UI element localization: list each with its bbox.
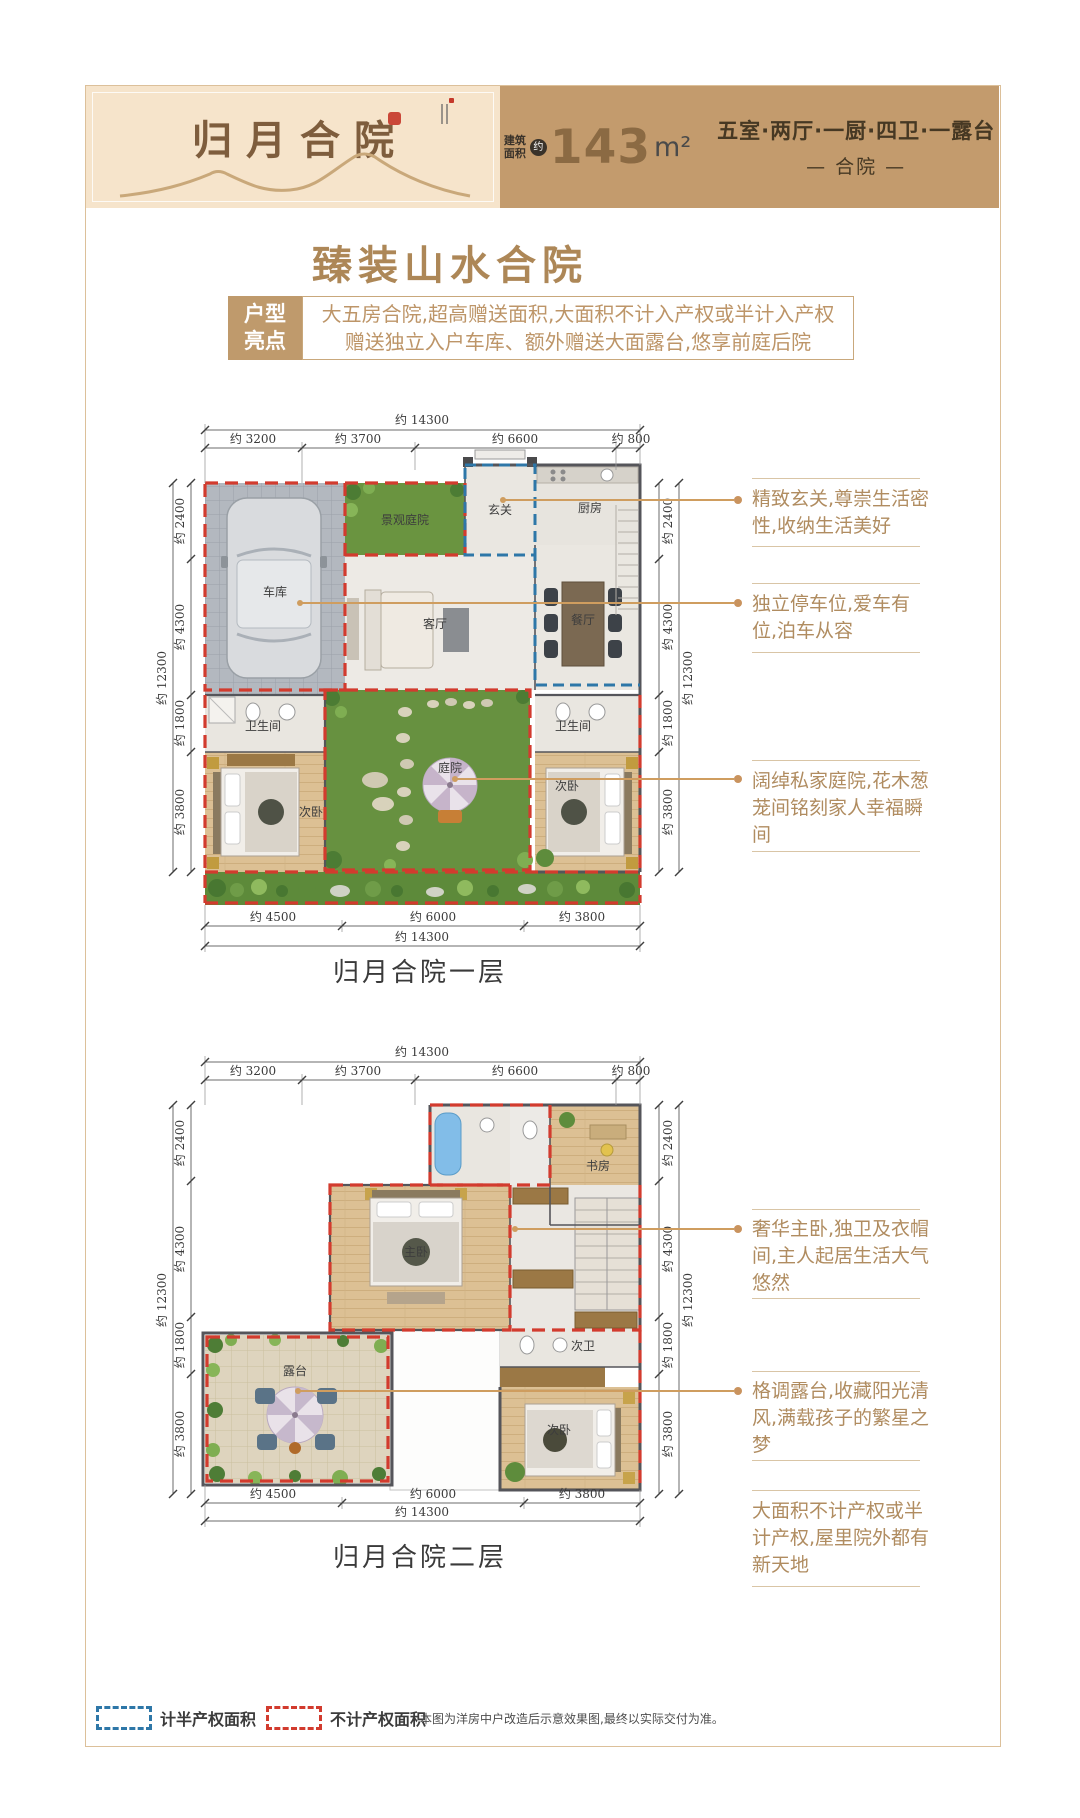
- svg-text:约 14300: 约 14300: [395, 929, 449, 944]
- room-label-foyer: 玄关: [488, 502, 512, 517]
- floor1-annotation-3: 阔绰私家庭院,花木葱茏间铭刻家人幸福瞬间: [752, 768, 932, 849]
- svg-text:约 12300: 约 12300: [680, 1273, 695, 1327]
- header-left-panel: 归月合院: [86, 86, 500, 208]
- approx-badge: 约: [530, 139, 547, 156]
- spec-group: 五室·两厅·一厨·四卫·一露台 — 合院 —: [717, 115, 995, 179]
- leader-line: [515, 1228, 734, 1230]
- highlight-label: 户型亮点: [228, 296, 302, 360]
- leader-origin: [297, 600, 303, 606]
- annotation-rule: [752, 1371, 920, 1372]
- room-label-dining: 餐厅: [571, 612, 595, 627]
- highlight-line1: 大五房合院,超高赠送面积,大面积不计入产权或半计入产权: [322, 300, 835, 328]
- leader-origin: [512, 1226, 518, 1232]
- leader-origin: [500, 497, 506, 503]
- leader-line: [503, 499, 734, 501]
- room-label-bed-left: 次卧: [299, 805, 323, 819]
- poster-page: 归月合院 建筑面积 约 143 m² 五室·两厅·一厨·四卫·一露台 — 合院 …: [0, 0, 1080, 1818]
- svg-text:约 3700: 约 3700: [335, 1063, 381, 1078]
- leader-bullet: [734, 1225, 742, 1233]
- red-seal-icon: [388, 112, 401, 125]
- svg-text:约 4300: 约 4300: [172, 604, 187, 650]
- annotation-rule: [752, 1298, 920, 1299]
- leader-line: [300, 602, 734, 604]
- svg-text:约 3200: 约 3200: [230, 1063, 276, 1078]
- room-label-bath-right: 卫生间: [555, 719, 591, 733]
- svg-text:约 800: 约 800: [612, 1063, 651, 1078]
- legend-no-property-label: 不计产权面积: [330, 1706, 426, 1730]
- svg-text:约 3800: 约 3800: [660, 1411, 675, 1457]
- svg-text:约 3800: 约 3800: [559, 1486, 605, 1501]
- svg-text:约 12300: 约 12300: [154, 651, 169, 705]
- svg-text:约 4500: 约 4500: [250, 1486, 296, 1501]
- room-label-garage: 车库: [263, 584, 287, 599]
- room-label-bed-right: 次卧: [555, 779, 579, 793]
- svg-text:约 3700: 约 3700: [335, 431, 381, 446]
- highlight-box: 大五房合院,超高赠送面积,大面积不计入产权或半计入产权 赠送独立入户车库、额外赠…: [302, 296, 854, 360]
- svg-text:约 2400: 约 2400: [172, 498, 187, 544]
- type-label: — 合院 —: [717, 152, 995, 179]
- annotation-rule: [752, 1490, 920, 1491]
- svg-text:约 2400: 约 2400: [172, 1120, 187, 1166]
- leader-bullet: [734, 599, 742, 607]
- svg-text:约 4300: 约 4300: [660, 1226, 675, 1272]
- svg-text:约 3800: 约 3800: [559, 909, 605, 924]
- svg-text:约 1800: 约 1800: [172, 700, 187, 746]
- floor1-plan: 车库 景观庭院 玄关 厨房 客厅 餐厅 卫生间 次卧 庭院 卫生间 次卧: [135, 360, 700, 980]
- brand-mark: [438, 98, 454, 126]
- annotation-rule: [752, 583, 920, 584]
- room-label-master: 主卧: [404, 1245, 428, 1259]
- svg-text:约 6600: 约 6600: [492, 431, 538, 446]
- svg-text:约 800: 约 800: [612, 431, 651, 446]
- void-area: [390, 1330, 500, 1490]
- legend-no-property-swatch: [266, 1706, 322, 1730]
- svg-text:约 1800: 约 1800: [660, 700, 675, 746]
- svg-text:约 3800: 约 3800: [172, 1411, 187, 1457]
- svg-text:约 4300: 约 4300: [660, 604, 675, 650]
- legend-disclaimer: 本图为洋房中户改造后示意效果图,最终以实际交付为准。: [420, 1710, 724, 1727]
- annotation-rule: [752, 1209, 920, 1210]
- legend-half-property-label: 计半产权面积: [160, 1706, 256, 1730]
- floor2-annotation-1: 奢华主卧,独卫及衣帽间,主人起居生活大气悠然: [752, 1216, 932, 1297]
- area-group: 建筑面积 约 143 m²: [504, 124, 691, 171]
- annotation-rule: [752, 1460, 920, 1461]
- room-spec: 五室·两厅·一厨·四卫·一露台: [717, 115, 995, 145]
- room-label-bath-second: 次卫: [571, 1339, 595, 1353]
- area-value: 143: [550, 124, 651, 171]
- svg-text:约 1800: 约 1800: [660, 1322, 675, 1368]
- leader-origin: [452, 776, 458, 782]
- room-label-bath-left: 卫生间: [245, 719, 281, 733]
- annotation-rule: [752, 478, 920, 479]
- svg-text:约 12300: 约 12300: [154, 1273, 169, 1327]
- floor2-caption: 归月合院二层: [270, 1537, 570, 1574]
- svg-text:约 14300: 约 14300: [395, 1044, 449, 1059]
- svg-text:约 4300: 约 4300: [172, 1226, 187, 1272]
- leader-bullet: [734, 775, 742, 783]
- svg-text:约 6000: 约 6000: [410, 909, 456, 924]
- svg-text:约 14300: 约 14300: [395, 412, 449, 427]
- stairs2: [575, 1198, 639, 1310]
- area-label: 建筑面积: [504, 134, 526, 160]
- leader-origin: [295, 1388, 301, 1394]
- greenery-strip: [205, 872, 640, 905]
- wc-room: [510, 1105, 550, 1185]
- svg-text:约 6600: 约 6600: [492, 1063, 538, 1078]
- room-label-bed-second: 次卧: [547, 1423, 571, 1437]
- legend-half-property-swatch: [96, 1706, 152, 1730]
- svg-text:约 2400: 约 2400: [660, 498, 675, 544]
- bed-right: [536, 757, 638, 869]
- floor2-annotation-2: 格调露台,收藏阳光清风,满载孩子的繁星之梦: [752, 1378, 932, 1459]
- svg-text:约 3200: 约 3200: [230, 431, 276, 446]
- leader-line: [455, 778, 734, 780]
- floor2-annotation-3: 大面积不计产权或半计产权,屋里院外都有新天地: [752, 1498, 932, 1579]
- leader-line: [298, 1390, 734, 1392]
- svg-text:约 2400: 约 2400: [660, 1120, 675, 1166]
- svg-text:约 1800: 约 1800: [172, 1322, 187, 1368]
- highlight-line2: 赠送独立入户车库、额外赠送大面露台,悠享前庭后院: [345, 328, 811, 356]
- roofline-graphic: [114, 144, 476, 200]
- annotation-rule: [752, 760, 920, 761]
- svg-text:约 12300: 约 12300: [680, 651, 695, 705]
- room-label-living: 客厅: [423, 616, 447, 631]
- section-title: 臻装山水合院: [85, 233, 815, 291]
- bed-second: [505, 1392, 635, 1484]
- leader-bullet: [734, 496, 742, 504]
- svg-text:约 3800: 约 3800: [660, 789, 675, 835]
- annotation-rule: [752, 546, 920, 547]
- floor1-annotation-2: 独立停车位,爱车有位,泊车从容: [752, 591, 932, 645]
- room-label-study: 书房: [586, 1158, 610, 1173]
- floor1-caption: 归月合院一层: [270, 952, 570, 989]
- leader-bullet: [734, 1387, 742, 1395]
- bed-left: [207, 754, 299, 869]
- floor1-annotation-1: 精致玄关,尊崇生活密性,收纳生活美好: [752, 486, 932, 540]
- svg-text:约 14300: 约 14300: [395, 1504, 449, 1519]
- room-label-courtyard: 庭院: [438, 760, 462, 775]
- room-label-terrace: 露台: [283, 1363, 307, 1378]
- closet-strip: [500, 1367, 605, 1387]
- area-unit: m²: [654, 134, 691, 161]
- room-label-garden: 景观庭院: [381, 512, 429, 527]
- annotation-rule: [752, 1586, 920, 1587]
- annotation-rule: [752, 652, 920, 653]
- svg-text:约 4500: 约 4500: [250, 909, 296, 924]
- svg-text:约 3800: 约 3800: [172, 789, 187, 835]
- room-label-kitchen: 厨房: [578, 500, 602, 515]
- svg-text:约 6000: 约 6000: [410, 1486, 456, 1501]
- annotation-rule: [752, 851, 920, 852]
- header-right-panel: 建筑面积 约 143 m² 五室·两厅·一厨·四卫·一露台 — 合院 —: [500, 86, 999, 208]
